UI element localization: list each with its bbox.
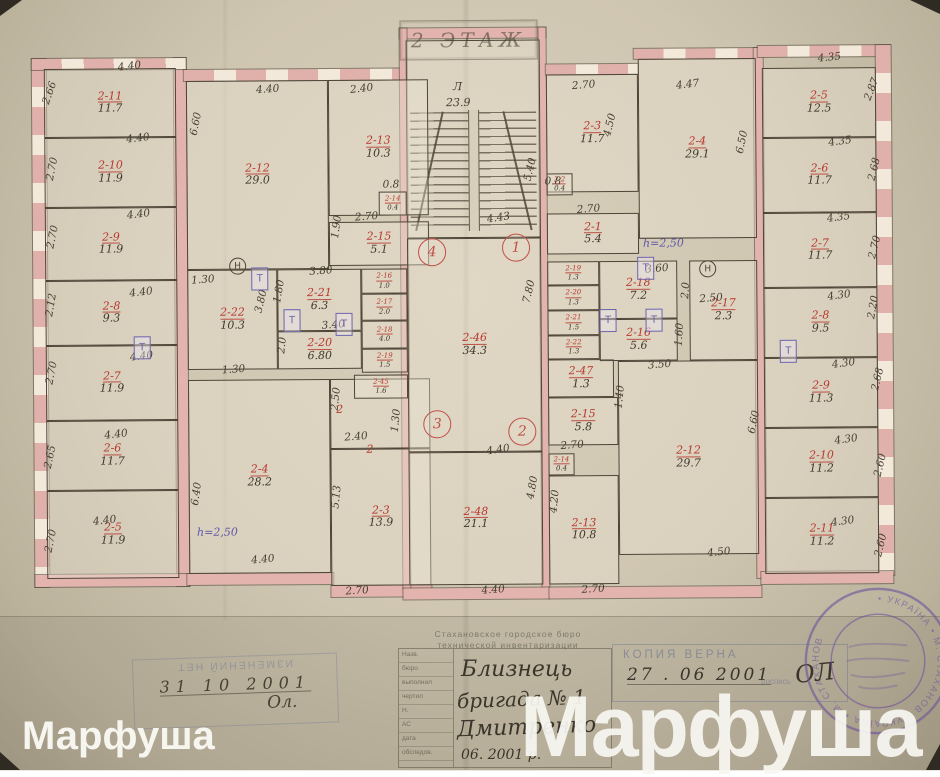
room-id-label: 2-20 bbox=[565, 290, 581, 298]
room-area-label: 11.9 bbox=[100, 383, 125, 396]
room-id-label: 2-18 bbox=[377, 326, 393, 334]
fixture-t-icon: Т bbox=[637, 257, 654, 280]
title-block: 2 ЭТАЖ bbox=[399, 20, 537, 61]
room-area-label: 10.3 bbox=[366, 148, 391, 161]
room-area-label: 11.7 bbox=[808, 250, 833, 263]
dim-label: 2.70 bbox=[560, 438, 584, 452]
room-id-label: 2-21 bbox=[566, 315, 582, 323]
fixture-h-icon: Н bbox=[699, 260, 716, 277]
room-area-label: 34.3 bbox=[462, 345, 487, 358]
room-area-label: 5.8 bbox=[575, 421, 593, 434]
stair-divider bbox=[468, 110, 480, 231]
plan-note: 2 bbox=[366, 443, 373, 456]
wall bbox=[403, 587, 549, 599]
room-id-label: 2-14 bbox=[554, 456, 570, 464]
fixture-t-icon: Т bbox=[283, 309, 300, 332]
dim-label: 4.40 bbox=[481, 583, 505, 597]
form-row-label: АС bbox=[399, 719, 453, 733]
form-row-label: бюро bbox=[399, 663, 453, 677]
room-2-20: 2-206.80 bbox=[278, 331, 362, 370]
room-area-label: 5.1 bbox=[370, 244, 388, 257]
room-2-10: 2-1011.2 bbox=[764, 427, 878, 498]
room-id-label: 2-16 bbox=[376, 273, 392, 281]
room-id-label: 2-17 bbox=[377, 299, 393, 307]
fixture-t-icon: Т bbox=[599, 309, 616, 332]
axis-marker: 3 bbox=[423, 410, 451, 438]
dim-label: 4.20 bbox=[547, 489, 561, 513]
form-row-label: обследов. bbox=[399, 747, 453, 761]
room-2-20: 2-201.3 bbox=[547, 285, 599, 310]
room-area-label: 1.3 bbox=[568, 347, 579, 355]
fixture-t-icon: Т bbox=[251, 267, 268, 290]
room-id-label: 2-22 bbox=[566, 339, 582, 347]
dim-label: 2.0 bbox=[275, 336, 289, 354]
dim-label: 2.70 bbox=[345, 584, 369, 597]
dim-label: 1.40 bbox=[613, 385, 627, 409]
room-2-5: 2-511.9 bbox=[47, 490, 180, 579]
room-area-label: 1.5 bbox=[568, 323, 579, 331]
fixture-h-icon: Н bbox=[229, 258, 246, 275]
room-2-47: 2-471.3 bbox=[548, 359, 614, 397]
room-area-label: 10.8 bbox=[572, 530, 597, 543]
room-area-label: 1.0 bbox=[379, 281, 390, 289]
axis-marker: 2 bbox=[508, 418, 536, 446]
room-2-18: 2-184.0 bbox=[362, 320, 408, 348]
plan-note: 23.9 bbox=[446, 96, 471, 109]
form-row-label: чертил bbox=[399, 691, 453, 705]
room-2-11: 2-1111.7 bbox=[44, 68, 176, 138]
dim-label: 4.35 bbox=[817, 50, 841, 64]
room-area-label: 11.2 bbox=[810, 535, 835, 548]
room-id-label: 2-19 bbox=[565, 265, 581, 273]
room-area-label: 1.6 bbox=[375, 387, 386, 395]
dim-label: 1.30 bbox=[191, 273, 215, 287]
bureau-name-line1: Стахановское городское бюро bbox=[408, 629, 608, 640]
dim-label: 2.70 bbox=[581, 582, 605, 595]
room-area-label: 12.5 bbox=[807, 102, 832, 115]
room-area-label: 2.0 bbox=[379, 307, 390, 315]
dim-label: 4.40 bbox=[251, 552, 275, 566]
dim-label: 4.50 bbox=[707, 545, 731, 559]
fixture-t-icon: Т bbox=[780, 340, 797, 363]
axis-marker: 1 bbox=[502, 234, 530, 262]
room-area-label: 29.7 bbox=[676, 457, 701, 470]
room-area-label: 2.3 bbox=[715, 310, 733, 323]
room-area-label: 6.3 bbox=[311, 300, 329, 313]
plan-note: h=2,50 bbox=[197, 526, 238, 539]
dim-label: 2.70 bbox=[576, 202, 600, 216]
form-row-labels: Назв.бюровыполнилчертилН.АСдатаобследов. bbox=[399, 649, 454, 767]
dim-label: 2.0 bbox=[679, 282, 692, 299]
room-2-45: 2-451.6 bbox=[354, 374, 408, 398]
dim-label: 2.70 bbox=[571, 78, 595, 92]
plan-note: Л bbox=[453, 80, 462, 93]
fixture-t-icon: Т bbox=[335, 313, 352, 336]
watermark-large: Марфуша bbox=[520, 678, 921, 777]
form-row-label: дата bbox=[399, 733, 453, 747]
fixture-t-icon: Т bbox=[645, 309, 662, 332]
room-2-14: 2-140.4 bbox=[379, 191, 407, 215]
room-area-label: 11.7 bbox=[807, 175, 832, 188]
room-2-10: 2-1011.9 bbox=[44, 137, 176, 208]
room-area-label: 0.4 bbox=[387, 204, 398, 212]
room-area-label: 1.5 bbox=[379, 361, 390, 369]
room-2-48: 2-4821.1 bbox=[408, 451, 543, 585]
room-2-7: 2-711.9 bbox=[46, 345, 179, 421]
room-area-label: 5.6 bbox=[630, 340, 648, 353]
plan-note: 2 bbox=[336, 403, 343, 416]
dim-label: 5.13 bbox=[329, 485, 343, 509]
room-area-label: 7.2 bbox=[630, 290, 648, 303]
floor-title: 2 ЭТАЖ bbox=[411, 28, 527, 53]
room-2-9: 2-911.9 bbox=[45, 207, 178, 281]
room-2-17: 2-172.0 bbox=[361, 293, 407, 320]
room-2-19: 2-191.5 bbox=[362, 348, 408, 372]
wall bbox=[187, 573, 333, 585]
room-area-label: 11.9 bbox=[98, 172, 123, 185]
room-area-label: 9.5 bbox=[812, 322, 830, 335]
room-area-label: 21.1 bbox=[464, 518, 489, 531]
dim-label: 4.40 bbox=[92, 513, 117, 528]
room-id-label: 2-19 bbox=[377, 352, 393, 360]
dim-label: 2.50 bbox=[699, 291, 723, 305]
room-2-6: 2-611.7 bbox=[762, 137, 877, 213]
dim-label: 0.8 bbox=[383, 178, 400, 190]
axis-marker: 4 bbox=[418, 238, 446, 266]
room-area-label: 11.3 bbox=[809, 392, 834, 405]
room-area-label: 13.9 bbox=[369, 517, 394, 530]
room-2-12: 2-1229.7 bbox=[618, 360, 759, 555]
room-id-label: 2-45 bbox=[373, 378, 389, 386]
dim-label: 2.70 bbox=[354, 210, 378, 224]
dim-label: 1.30 bbox=[389, 408, 403, 432]
room-area-label: 11.9 bbox=[99, 244, 124, 257]
room-2-5: 2-512.5 bbox=[762, 67, 876, 138]
room-area-label: 11.7 bbox=[100, 455, 125, 468]
room-area-label: 11.7 bbox=[98, 103, 123, 116]
stamp-date-handwritten: 31 10 2001 bbox=[134, 671, 338, 697]
dim-label: 1.30 bbox=[221, 363, 245, 377]
room-id-label: 2-14 bbox=[385, 195, 401, 203]
room-2-19: 2-191.3 bbox=[547, 261, 599, 285]
room-2-12: 2-1229.0 bbox=[186, 80, 329, 270]
room-area-label: 29.0 bbox=[245, 175, 270, 188]
fixture-t-icon: Т bbox=[134, 336, 151, 359]
room-area-label: 5.4 bbox=[584, 234, 602, 247]
dim-label: 0.8 bbox=[545, 175, 562, 187]
room-area-label: 11.2 bbox=[809, 462, 834, 475]
room-2-22: 2-221.3 bbox=[548, 335, 600, 359]
room-2-8: 2-89.3 bbox=[45, 280, 177, 346]
dim-label: 3.80 bbox=[309, 264, 333, 278]
dim-label: 1.60 bbox=[673, 322, 686, 346]
room-area-label: 1.3 bbox=[572, 378, 590, 391]
dim-label: 3.50 bbox=[647, 358, 671, 372]
room-2-21: 2-211.5 bbox=[547, 310, 599, 335]
room-area-label: 4.0 bbox=[379, 335, 390, 343]
room-area-label: 6.80 bbox=[308, 350, 333, 363]
room-2-1: 2-15.4 bbox=[547, 213, 639, 255]
room-area-label: 11.9 bbox=[101, 534, 126, 547]
room-area-label: 0.4 bbox=[556, 464, 567, 472]
form-row-label: Назв. bbox=[399, 649, 453, 663]
room-2-16: 2-161.0 bbox=[361, 268, 407, 293]
watermark-small: Марфуша bbox=[22, 714, 215, 759]
plan-note: h=2,50 bbox=[643, 237, 684, 250]
room-area-label: 28.2 bbox=[247, 476, 272, 489]
room-area-label: 1.3 bbox=[568, 273, 579, 281]
room-2-14: 2-140.4 bbox=[548, 453, 574, 475]
scanned-floor-plan-photo: 2 ЭТАЖ 2-1111.72-1011.92-911.92-89.32-71… bbox=[0, 0, 940, 770]
room-area-label: 1.3 bbox=[568, 298, 579, 306]
room-2-11: 2-1111.2 bbox=[765, 497, 880, 574]
room-area-label: 29.1 bbox=[685, 148, 710, 161]
room-2-4: 2-428.2 bbox=[188, 379, 331, 574]
room-2-17: 2-172.3 bbox=[689, 260, 758, 360]
wall bbox=[546, 64, 638, 75]
form-row-label: выполнил bbox=[399, 677, 453, 691]
room-area-label: 9.3 bbox=[103, 313, 121, 326]
dim-label: 4.40 bbox=[256, 83, 280, 97]
dim-label: 2.40 bbox=[344, 430, 368, 444]
form-row-label: Н. bbox=[399, 705, 453, 719]
room-area-label: 10.3 bbox=[220, 320, 245, 333]
room-2-7: 2-711.7 bbox=[763, 212, 878, 288]
room-2-9: 2-911.3 bbox=[764, 357, 878, 428]
